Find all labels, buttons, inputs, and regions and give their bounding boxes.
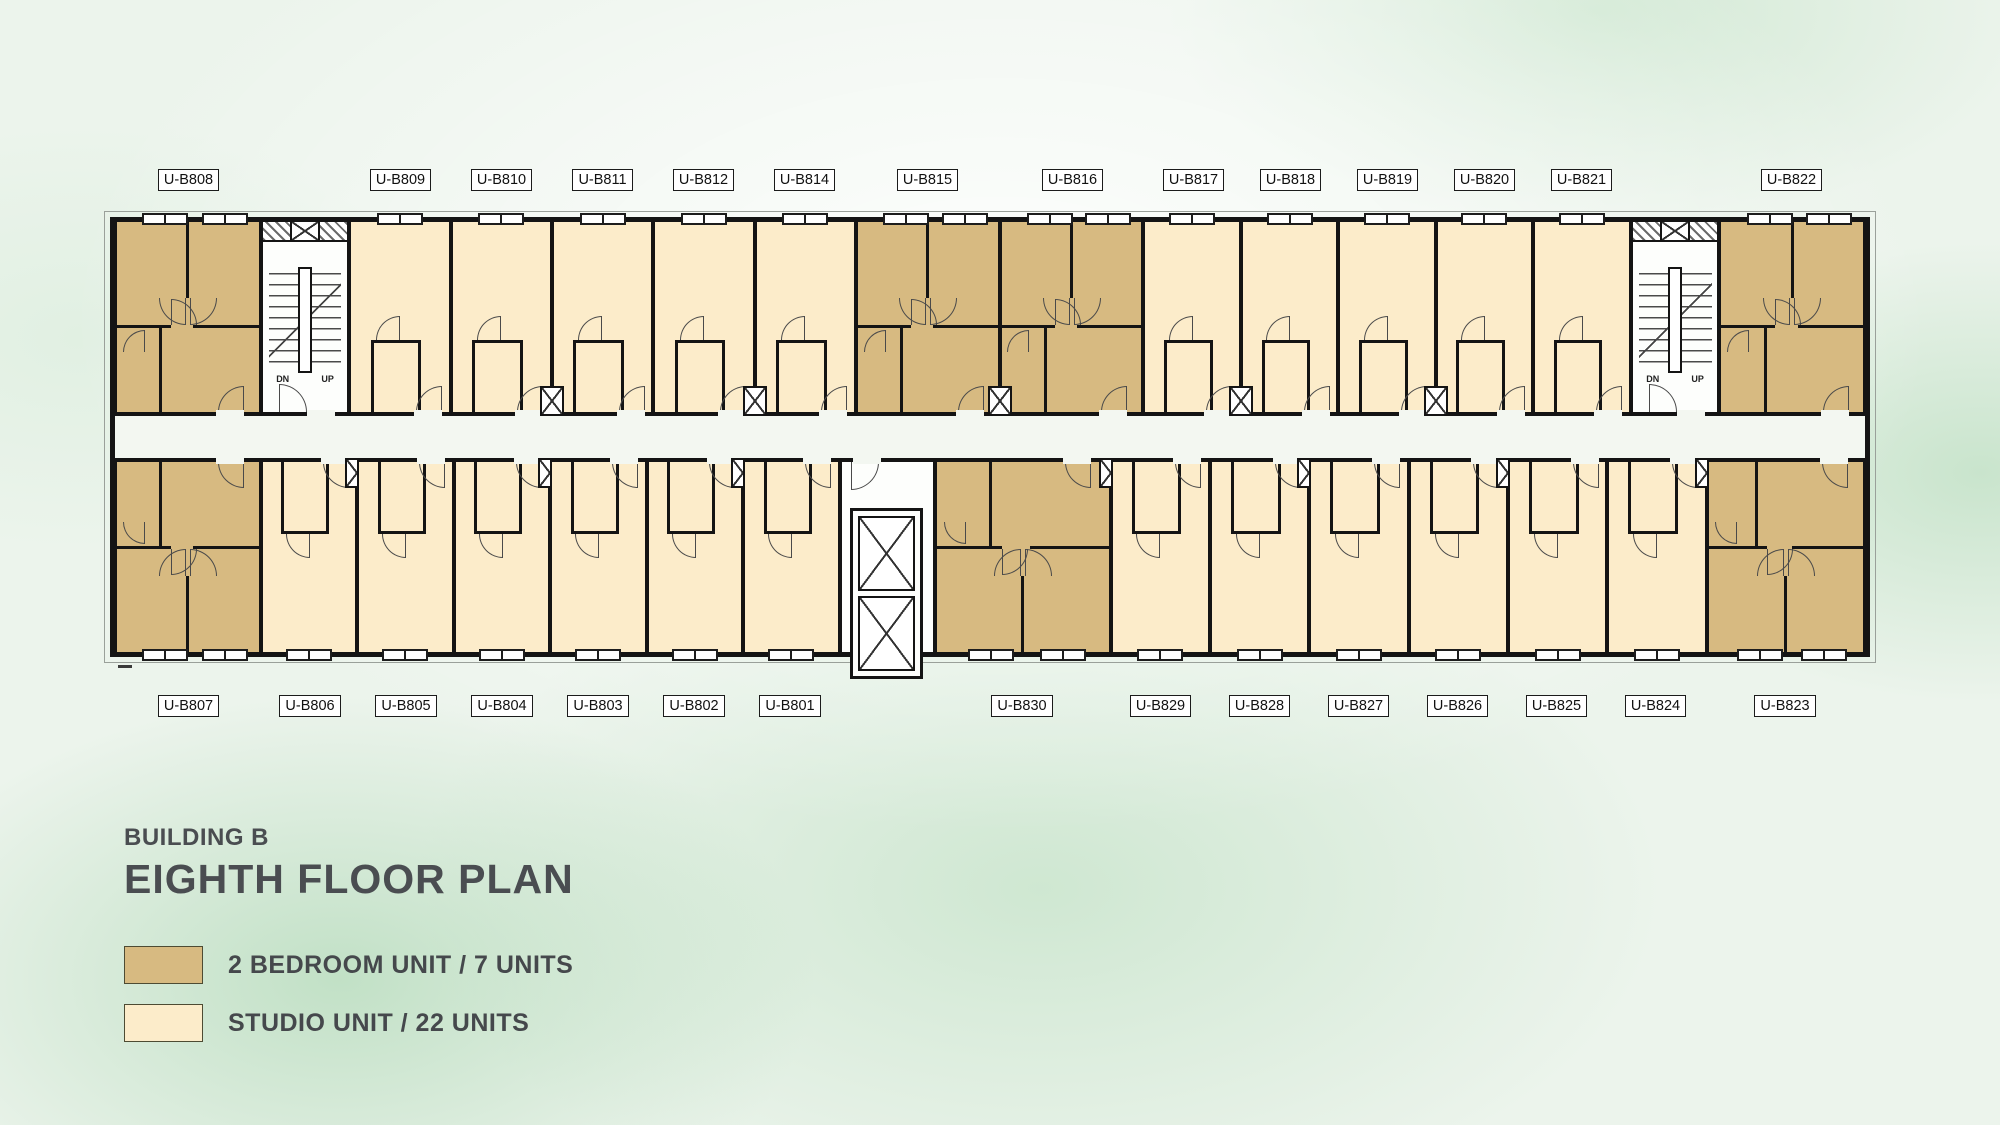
bathroom	[1164, 340, 1213, 412]
shaft-x-icon	[1660, 222, 1690, 240]
window-icon	[1027, 213, 1073, 225]
bathroom	[1529, 462, 1579, 534]
door-arc-icon	[123, 522, 145, 544]
door-arc-icon	[944, 522, 966, 544]
stair-door-arc-icon	[1649, 384, 1677, 412]
door-arc-icon	[864, 330, 886, 352]
window-icon	[575, 649, 621, 661]
unit-label-U-B817: U-B817	[1163, 169, 1224, 191]
unit-U-B829	[1111, 458, 1210, 652]
unit-U-B808	[115, 222, 261, 416]
bathroom	[1231, 462, 1281, 534]
two-bedroom-legend-label: 2 BEDROOM UNIT / 7 UNITS	[228, 951, 573, 980]
unit-U-B821	[1533, 222, 1630, 416]
unit-U-B817	[1143, 222, 1240, 416]
utility-shaft-icon	[743, 386, 767, 416]
legend-row-studio: STUDIO UNIT / 22 UNITS	[124, 1004, 574, 1042]
bathroom	[1456, 340, 1505, 412]
bathroom	[1628, 462, 1678, 534]
stair-down-label: DN	[1646, 374, 1659, 384]
bottom-unit-labels-row: U-B807U-B806U-B805U-B804U-B803U-B802U-B8…	[115, 694, 1865, 718]
unit-label-U-B811: U-B811	[572, 169, 632, 191]
window-icon	[286, 649, 332, 661]
window-icon	[1634, 649, 1680, 661]
unit-label-U-B815: U-B815	[897, 169, 958, 191]
window-icon	[1237, 649, 1283, 661]
unit-label-U-B801: U-B801	[759, 695, 820, 717]
window-icon	[202, 213, 248, 225]
door-arc-icon	[1136, 534, 1160, 558]
unit-U-B812	[653, 222, 754, 416]
elevator-icon	[858, 596, 915, 671]
stair-up-label: UP	[1691, 374, 1704, 384]
window-icon	[142, 649, 188, 661]
title-block: BUILDING B EIGHTH FLOOR PLAN 2 BEDROOM U…	[124, 826, 574, 1042]
window-icon	[1169, 213, 1215, 225]
window-icon	[968, 649, 1014, 661]
bathroom	[776, 340, 827, 412]
stair-treads	[269, 273, 342, 368]
window-icon	[1747, 213, 1793, 225]
unit-U-B815	[856, 222, 1000, 416]
door-arc-icon	[123, 330, 145, 352]
door-arc-icon	[286, 534, 310, 558]
unit-U-B803	[550, 458, 646, 652]
unit-U-B802	[647, 458, 743, 652]
unit-label-U-B819: U-B819	[1357, 169, 1418, 191]
unit-label-U-B814: U-B814	[774, 169, 835, 191]
door-arc-icon	[1007, 330, 1029, 352]
window-icon	[1737, 649, 1783, 661]
unit-U-B826	[1409, 458, 1508, 652]
unit-label-U-B823: U-B823	[1754, 695, 1815, 717]
entry-door-arc-icon	[1822, 462, 1848, 488]
window-icon	[768, 649, 814, 661]
door-arc-icon	[1633, 534, 1657, 558]
utility-shaft-icon	[1424, 386, 1448, 416]
window-icon	[1085, 213, 1131, 225]
bathroom	[1359, 340, 1408, 412]
door-arc-icon	[1534, 534, 1558, 558]
unit-U-B810	[451, 222, 552, 416]
unit-U-B827	[1309, 458, 1408, 652]
bathroom	[571, 462, 619, 534]
unit-label-U-B822: U-B822	[1761, 169, 1822, 191]
bathroom	[764, 462, 812, 534]
unit-label-U-B821: U-B821	[1551, 169, 1612, 191]
unit-label-U-B827: U-B827	[1328, 695, 1389, 717]
door-arc-icon	[1715, 522, 1737, 544]
unit-U-B825	[1508, 458, 1607, 652]
unit-label-U-B805: U-B805	[375, 695, 436, 717]
door-arc-icon	[479, 534, 503, 558]
unit-label-U-B806: U-B806	[279, 695, 340, 717]
bathroom	[675, 340, 726, 412]
door-arc-icon	[1727, 330, 1749, 352]
unit-U-B822	[1719, 222, 1865, 416]
window-icon	[1364, 213, 1410, 225]
bathroom	[667, 462, 715, 534]
window-icon	[479, 649, 525, 661]
hatched-wall	[263, 222, 348, 242]
top-unit-labels-row: U-B808U-B809U-B810U-B811U-B812U-B814U-B8…	[115, 168, 1865, 192]
bathroom	[378, 462, 426, 534]
door-arc-icon	[672, 534, 696, 558]
unit-label-U-B824: U-B824	[1625, 695, 1686, 717]
unit-label-U-B804: U-B804	[471, 695, 532, 717]
window-icon	[202, 649, 248, 661]
door-arc-icon	[1169, 316, 1193, 340]
unit-U-B811	[552, 222, 653, 416]
bedroom-door-arc-icon	[1025, 549, 1052, 576]
bathroom	[573, 340, 624, 412]
bathroom	[1262, 340, 1311, 412]
unit-label-U-B816: U-B816	[1042, 169, 1103, 191]
shaft-x-icon	[290, 222, 320, 240]
window-icon	[1040, 649, 1086, 661]
door-arc-icon	[477, 316, 501, 340]
bathroom	[281, 462, 329, 534]
door-arc-icon	[768, 534, 792, 558]
unit-label-U-B809: U-B809	[370, 169, 431, 191]
legend-row-2-bedroom: 2 BEDROOM UNIT / 7 UNITS	[124, 946, 574, 984]
unit-U-B824	[1607, 458, 1706, 652]
building-title: BUILDING B	[124, 826, 574, 850]
legend: 2 BEDROOM UNIT / 7 UNITS STUDIO UNIT / 2…	[124, 946, 574, 1042]
door-arc-icon	[680, 316, 704, 340]
elevator-lobby	[840, 458, 936, 652]
door-arc-icon	[376, 316, 400, 340]
unit-U-B820	[1436, 222, 1533, 416]
door-arc-icon	[1559, 316, 1583, 340]
unit-U-B804	[454, 458, 550, 652]
unit-label-U-B829: U-B829	[1130, 695, 1191, 717]
entry-door-arc-icon	[1065, 462, 1091, 488]
door-arc-icon	[578, 316, 602, 340]
stair-west: DN UP	[261, 222, 350, 416]
elevator-bank	[850, 508, 923, 679]
unit-label-U-B825: U-B825	[1526, 695, 1587, 717]
unit-label-U-B802: U-B802	[663, 695, 724, 717]
stair-down-label: DN	[276, 374, 289, 384]
unit-U-B806	[261, 458, 357, 652]
window-icon	[1435, 649, 1481, 661]
bathroom	[1554, 340, 1603, 412]
unit-U-B809	[349, 222, 450, 416]
window-icon	[382, 649, 428, 661]
window-icon	[142, 213, 188, 225]
window-icon	[1806, 213, 1852, 225]
door-arc-icon	[1435, 534, 1459, 558]
floor-plan-title: EIGHTH FLOOR PLAN	[124, 859, 574, 900]
hatched-wall	[1633, 222, 1718, 242]
bathroom	[1132, 462, 1182, 534]
utility-shaft-icon	[988, 386, 1012, 416]
unit-U-B801	[743, 458, 839, 652]
studio-swatch	[124, 1004, 203, 1042]
bathroom	[371, 340, 422, 412]
bottom-unit-row	[115, 458, 1865, 652]
window-icon	[782, 213, 828, 225]
door-arc-icon	[1236, 534, 1260, 558]
stair-door-arc-icon	[279, 384, 307, 412]
entry-door-arc-icon	[218, 462, 244, 488]
elevator-icon	[858, 516, 915, 591]
stair-treads	[1639, 273, 1712, 368]
building-outline: DN UP	[110, 217, 1870, 657]
window-icon	[681, 213, 727, 225]
stair-rail	[298, 267, 312, 373]
unit-U-B814	[755, 222, 856, 416]
window-icon	[1461, 213, 1507, 225]
window-icon	[883, 213, 929, 225]
tick-mark	[118, 665, 132, 668]
unit-label-U-B818: U-B818	[1260, 169, 1321, 191]
window-icon	[1535, 649, 1581, 661]
unit-U-B818	[1241, 222, 1338, 416]
window-icon	[1336, 649, 1382, 661]
unit-label-U-B808: U-B808	[158, 169, 219, 191]
utility-shaft-icon	[1229, 386, 1253, 416]
unit-label-U-B828: U-B828	[1229, 695, 1290, 717]
entry-door-arc-icon	[218, 386, 244, 412]
door-arc-icon	[1364, 316, 1388, 340]
window-icon	[377, 213, 423, 225]
bathroom	[474, 462, 522, 534]
door-arc-icon	[1335, 534, 1359, 558]
window-icon	[672, 649, 718, 661]
door-arc-icon	[1266, 316, 1290, 340]
window-icon	[1137, 649, 1183, 661]
window-icon	[478, 213, 524, 225]
window-icon	[1801, 649, 1847, 661]
studio-legend-label: STUDIO UNIT / 22 UNITS	[228, 1009, 529, 1038]
door-arc-icon	[575, 534, 599, 558]
unit-label-U-B807: U-B807	[158, 695, 219, 717]
stair-rail	[1668, 267, 1682, 373]
unit-U-B816	[1000, 222, 1144, 416]
window-icon	[1559, 213, 1605, 225]
top-unit-row: DN UP	[115, 222, 1865, 416]
stair-east: DN UP	[1631, 222, 1720, 416]
lobby-door-arc-icon	[851, 462, 879, 490]
two-bedroom-swatch	[124, 946, 203, 984]
unit-U-B819	[1338, 222, 1435, 416]
window-icon	[580, 213, 626, 225]
unit-label-U-B826: U-B826	[1427, 695, 1488, 717]
entry-door-arc-icon	[958, 386, 984, 412]
unit-label-U-B803: U-B803	[567, 695, 628, 717]
door-arc-icon	[382, 534, 406, 558]
entry-door-arc-icon	[1823, 386, 1849, 412]
unit-U-B807	[115, 458, 261, 652]
bathroom	[472, 340, 523, 412]
bathroom	[1430, 462, 1480, 534]
unit-U-B830	[935, 458, 1110, 652]
door-arc-icon	[781, 316, 805, 340]
window-icon	[1267, 213, 1313, 225]
bathroom	[1330, 462, 1380, 534]
door-arc-icon	[1461, 316, 1485, 340]
stair-up-label: UP	[321, 374, 334, 384]
floor-plan-page: U-B808U-B809U-B810U-B811U-B812U-B814U-B8…	[0, 0, 2000, 1125]
corridor	[115, 416, 1865, 458]
unit-label-U-B810: U-B810	[471, 169, 532, 191]
window-icon	[942, 213, 988, 225]
entry-door-arc-icon	[1101, 386, 1127, 412]
unit-U-B805	[357, 458, 453, 652]
unit-label-U-B820: U-B820	[1454, 169, 1515, 191]
unit-U-B828	[1210, 458, 1309, 652]
unit-label-U-B830: U-B830	[991, 695, 1052, 717]
utility-shaft-icon	[540, 386, 564, 416]
unit-label-U-B812: U-B812	[673, 169, 734, 191]
unit-U-B823	[1707, 458, 1865, 652]
